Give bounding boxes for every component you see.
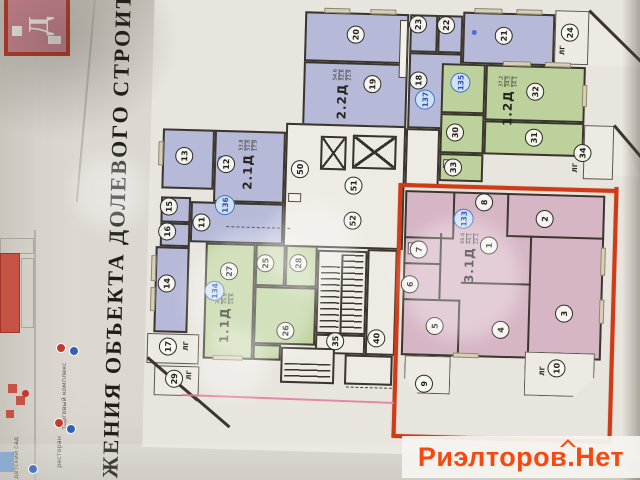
agency-watermark-text: Риэлторов.Нет <box>418 442 624 473</box>
porch-steps <box>284 363 330 381</box>
window <box>150 287 156 311</box>
agency-watermark: Риэлторов.Нет <box>402 436 640 478</box>
window <box>599 300 605 324</box>
window <box>503 61 531 67</box>
siteplan-outline <box>0 238 34 254</box>
elevator-shaft-1 <box>320 136 347 171</box>
apartment-areas: 54.652.621.9 <box>332 69 352 81</box>
loggia-label: ЛГ <box>558 46 566 56</box>
siteplan-building-small <box>16 396 25 405</box>
hall-fixture <box>288 193 301 202</box>
apartment-areas: 53.851.617.9 <box>238 139 258 151</box>
kitchen-counter <box>399 20 409 78</box>
loggia-label: ЛГ <box>185 370 193 380</box>
room-19-fill <box>302 61 408 128</box>
elevator-shaft-2 <box>352 135 397 170</box>
window <box>324 8 350 14</box>
photo-of-floorplan-document: ЖЕНИЯ ОБЪЕКТА ДОЛЕВОГО СТРОИТЕЛ <box>0 0 640 480</box>
siteplan-outline <box>21 258 34 328</box>
plumbing-dot <box>472 30 477 35</box>
window <box>474 8 502 14</box>
hall-upper-right <box>405 128 441 186</box>
edge-shadow <box>622 0 640 480</box>
apartment-type: 2.1Д <box>240 154 255 190</box>
loggia-label: ЛГ <box>571 163 579 173</box>
window <box>600 248 606 276</box>
ghost-watermark <box>73 156 145 228</box>
loggia-label: ЛГ <box>538 366 546 376</box>
legend-dot-blue <box>69 346 79 356</box>
window <box>516 9 542 15</box>
siteplan-building-small <box>6 410 14 418</box>
window <box>582 85 588 107</box>
legend-dot-red <box>56 343 66 353</box>
window <box>545 62 571 68</box>
apartment-label-21d: 2.1Д 53.851.617.9 <box>237 139 258 190</box>
apartment-type: 2.2Д <box>334 83 349 119</box>
window <box>453 353 479 359</box>
siteplan-marker-red <box>22 390 29 397</box>
window <box>370 9 396 15</box>
apartment-areas: 37.234.514.1 <box>498 76 518 88</box>
apartment-type: 1.2Д <box>500 90 515 126</box>
loggia-label: ЛГ <box>182 341 190 351</box>
window <box>158 141 164 165</box>
siteplan-divider <box>34 230 36 480</box>
window <box>151 255 157 281</box>
corner-shadow <box>0 0 180 140</box>
siteplan-building-small <box>8 384 17 393</box>
vestibule <box>344 355 393 386</box>
siteplan-building-red <box>0 253 20 333</box>
legend-dot-blue <box>66 424 76 434</box>
apartment-label-22d: 2.2Д 54.652.621.9 <box>331 69 352 120</box>
apartment-label-12d: 1.2Д 37.234.514.1 <box>497 76 518 127</box>
legend-dot-red <box>54 418 64 428</box>
